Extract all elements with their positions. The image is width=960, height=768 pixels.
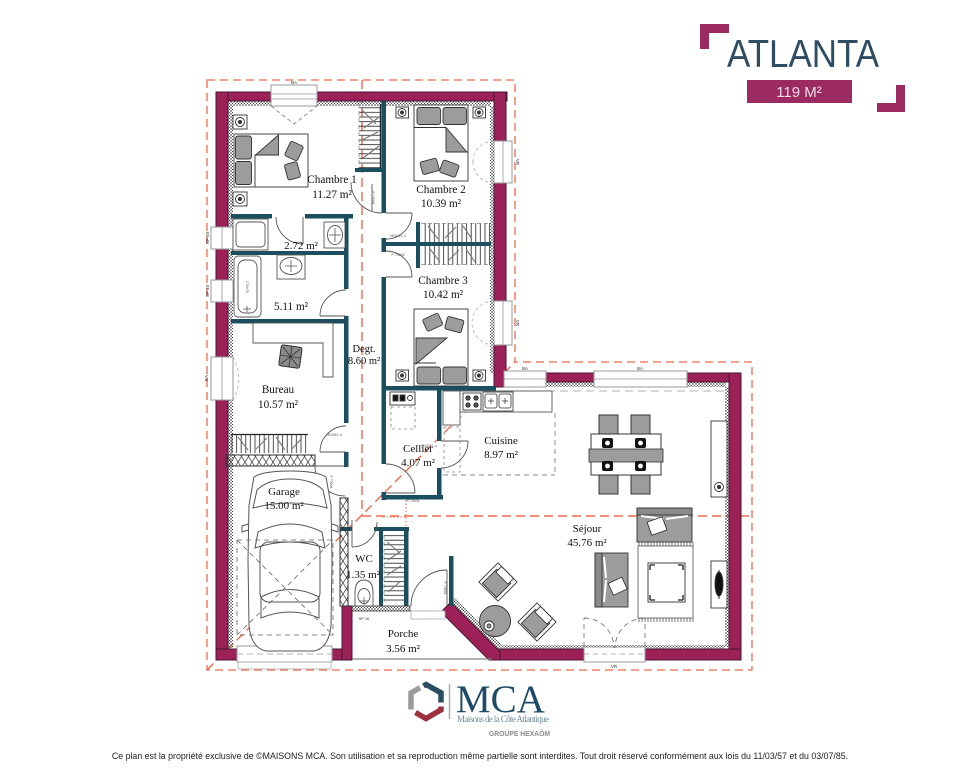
svg-text:P 73004: P 73004: [443, 582, 447, 595]
svg-text:Garage: Garage: [268, 486, 300, 498]
svg-text:119 M²: 119 M²: [776, 84, 822, 101]
svg-text:SP 10: SP 10: [205, 231, 210, 244]
svg-text:8.97 m²: 8.97 m²: [484, 449, 519, 461]
svg-text:Chambre 3: Chambre 3: [418, 275, 468, 287]
svg-text:BA: BA: [637, 366, 643, 371]
svg-text:P 73004: P 73004: [407, 499, 420, 503]
svg-text:8.60 m²: 8.60 m²: [348, 356, 380, 367]
svg-text:1.35 m²: 1.35 m²: [346, 569, 381, 581]
svg-text:Degt.: Degt.: [352, 344, 375, 355]
svg-text:MODEL d: MODEL d: [390, 234, 405, 238]
svg-text:P 73004: P 73004: [329, 476, 333, 489]
svg-text:15.00 m²: 15.00 m²: [264, 500, 304, 512]
svg-text:ATLANTA: ATLANTA: [727, 33, 879, 76]
svg-text:10.39 m²: 10.39 m²: [421, 198, 462, 210]
svg-text:Ce plan est la propriété exclu: Ce plan est la propriété exclusive de ©M…: [112, 751, 848, 761]
svg-text:VR: VR: [515, 159, 520, 166]
svg-text:10.57 m²: 10.57 m²: [258, 399, 299, 411]
svg-text:45.76 m²: 45.76 m²: [567, 537, 607, 549]
svg-text:MODEL d: MODEL d: [421, 444, 436, 448]
svg-text:P 73004: P 73004: [371, 192, 375, 205]
svg-text:170x75: 170x75: [245, 281, 249, 293]
svg-text:Porche: Porche: [388, 628, 419, 640]
svg-text:P 73004: P 73004: [392, 253, 405, 257]
svg-text:GROUPE HEXAÔM: GROUPE HEXAÔM: [489, 729, 550, 738]
svg-text:Bureau: Bureau: [262, 384, 295, 396]
svg-text:BA: BA: [204, 375, 209, 381]
svg-text:10.42 m²: 10.42 m²: [423, 289, 464, 301]
svg-text:3.56 m²: 3.56 m²: [386, 643, 421, 655]
svg-text:Chambre 2: Chambre 2: [416, 184, 465, 196]
svg-text:BA: BA: [522, 366, 528, 371]
svg-text:5.11 m²: 5.11 m²: [274, 301, 309, 313]
svg-text:MODEL d: MODEL d: [326, 433, 341, 437]
svg-text:11.27 m²: 11.27 m²: [312, 189, 352, 201]
svg-text:SP 10: SP 10: [205, 284, 210, 297]
svg-text:BA: BA: [291, 80, 297, 85]
svg-text:Cuisine: Cuisine: [484, 435, 518, 447]
svg-text:SP 10: SP 10: [359, 616, 371, 621]
svg-text:VR: VR: [611, 664, 618, 669]
svg-text:Maisons de la Côte Atlantique: Maisons de la Côte Atlantique: [457, 714, 549, 724]
svg-text:4.07 m²: 4.07 m²: [401, 457, 436, 469]
svg-text:Séjour: Séjour: [573, 523, 602, 535]
svg-text:2.72 m²: 2.72 m²: [284, 240, 319, 252]
svg-text:VR: VR: [515, 320, 520, 327]
svg-text:Chambre 1: Chambre 1: [307, 174, 356, 186]
svg-text:WC: WC: [355, 553, 373, 565]
